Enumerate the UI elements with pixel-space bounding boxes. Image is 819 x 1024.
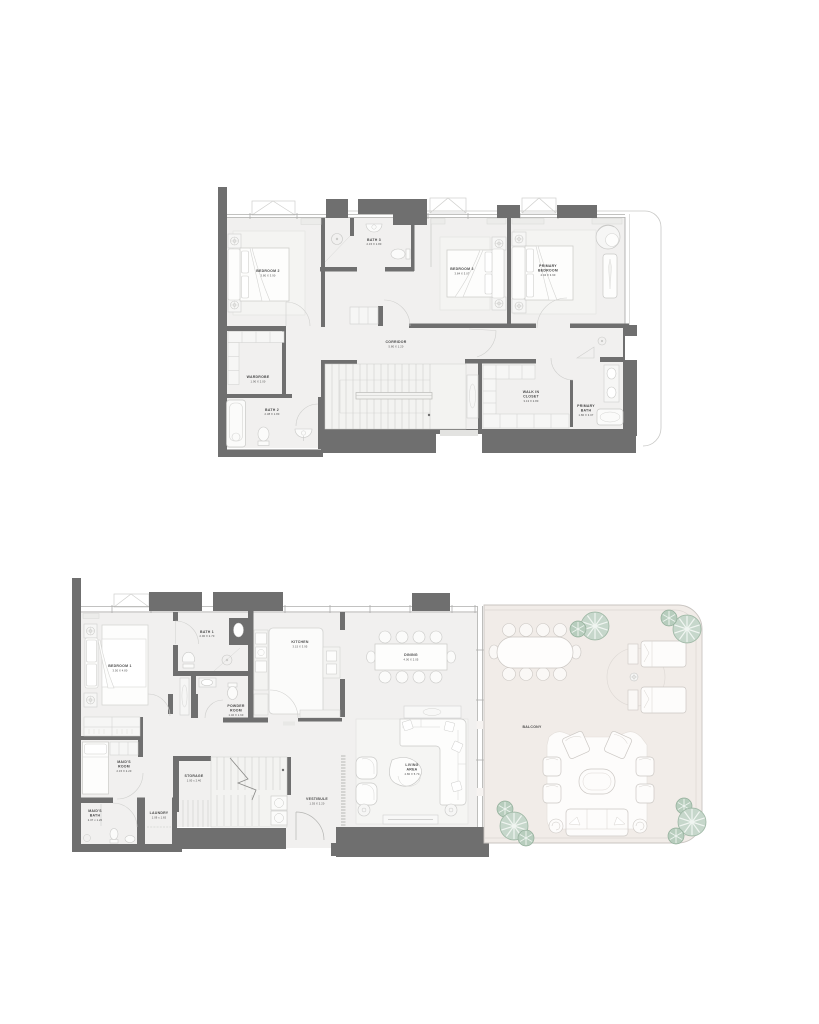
svg-text:2.07 x 1.20: 2.07 x 1.20	[88, 818, 103, 822]
svg-text:3.50 X 4.80: 3.50 X 4.80	[113, 669, 128, 673]
svg-text:BATH 2: BATH 2	[265, 408, 279, 412]
svg-text:4.80 X 5.70: 4.80 X 5.70	[405, 772, 420, 776]
svg-text:PRIMARY: PRIMARY	[539, 264, 557, 268]
svg-text:PRIMARY: PRIMARY	[577, 404, 595, 408]
svg-text:1.80 X 3.07: 1.80 X 3.07	[579, 413, 594, 417]
svg-text:3.13 X 2.80: 3.13 X 2.80	[524, 399, 539, 403]
svg-text:VESTIBULE: VESTIBULE	[306, 797, 328, 801]
svg-text:1.00 x 2.40: 1.00 x 2.40	[187, 778, 202, 782]
svg-text:3.84 X 3.07: 3.84 X 3.07	[455, 272, 470, 276]
svg-text:KITCHEN: KITCHEN	[291, 640, 309, 644]
svg-text:ROOM: ROOM	[118, 765, 130, 769]
svg-text:1.09 x 1.65: 1.09 x 1.65	[152, 815, 167, 819]
svg-text:WARDROBE: WARDROBE	[247, 375, 270, 379]
svg-text:AREA: AREA	[407, 768, 418, 772]
svg-text:1.40 X 1.60: 1.40 X 1.60	[229, 713, 244, 717]
svg-text:BATH 3: BATH 3	[367, 238, 381, 242]
svg-text:WALK IN: WALK IN	[523, 390, 540, 394]
svg-text:MAID'S: MAID'S	[88, 809, 102, 813]
svg-text:BEDROOM 3: BEDROOM 3	[450, 267, 473, 271]
svg-text:BEDROOM 2: BEDROOM 2	[256, 269, 279, 273]
svg-text:3.80 X 3.90: 3.80 X 3.90	[261, 274, 276, 278]
svg-text:ROOM: ROOM	[230, 709, 242, 713]
svg-text:LIVING: LIVING	[405, 763, 418, 767]
svg-text:2.38 X 1.80: 2.38 X 1.80	[265, 412, 280, 416]
svg-text:CLOSET: CLOSET	[523, 395, 539, 399]
svg-text:STORAGE: STORAGE	[185, 774, 204, 778]
svg-text:CORRIDOR: CORRIDOR	[385, 340, 406, 344]
svg-text:POWDER: POWDER	[227, 704, 244, 708]
svg-text:4.04 X 3.90: 4.04 X 3.90	[541, 273, 556, 277]
svg-text:1.55 X 2.20: 1.55 X 2.20	[310, 801, 325, 805]
svg-text:2.15 X 1.80: 2.15 X 1.80	[367, 242, 382, 246]
svg-text:BATH: BATH	[581, 409, 592, 413]
svg-text:4.00 X 2.05: 4.00 X 2.05	[404, 657, 419, 661]
svg-text:BALCONY: BALCONY	[522, 725, 541, 729]
svg-text:BATH: BATH	[90, 814, 101, 818]
svg-text:BATH 1: BATH 1	[200, 630, 214, 634]
svg-text:MAID'S: MAID'S	[117, 760, 131, 764]
svg-text:1.90 X 2.00: 1.90 X 2.00	[251, 380, 266, 384]
svg-text:LAUNDRY: LAUNDRY	[150, 811, 169, 815]
svg-text:DINING: DINING	[404, 653, 418, 657]
svg-text:BEDROOM 1: BEDROOM 1	[108, 664, 131, 668]
svg-text:5.80 X 1.20: 5.80 X 1.20	[389, 344, 404, 348]
svg-text:3.15 X 3.95: 3.15 X 3.95	[293, 644, 308, 648]
svg-text:2.15 X 2.20: 2.15 X 2.20	[117, 769, 132, 773]
svg-text:BEDROOM: BEDROOM	[538, 269, 558, 273]
svg-text:2.90 X 2.70: 2.90 X 2.70	[200, 634, 215, 638]
